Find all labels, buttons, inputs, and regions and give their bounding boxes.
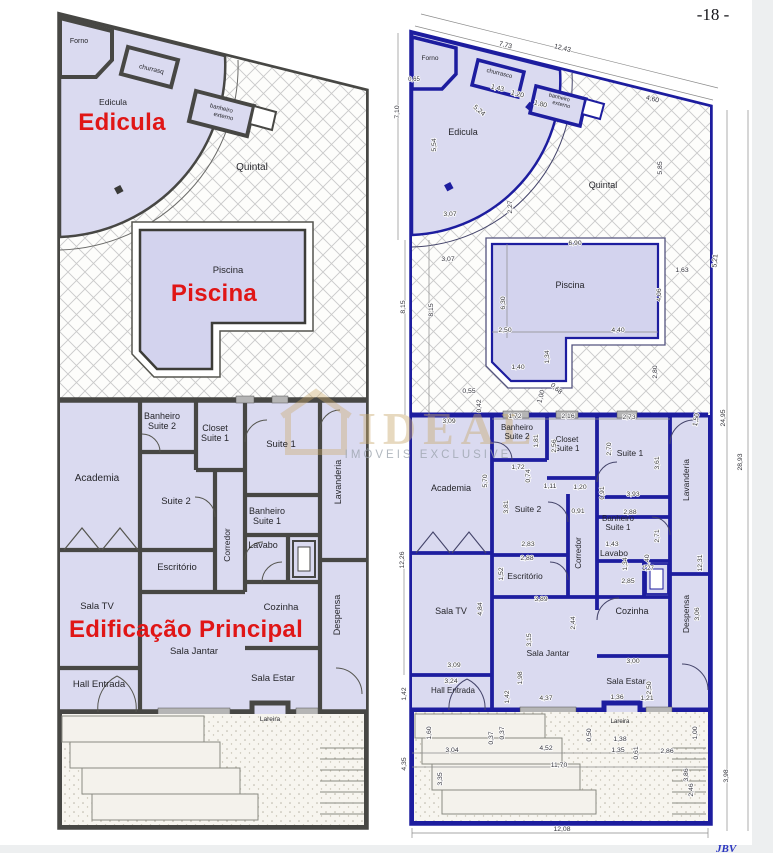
room-label: Suite 2: [505, 432, 530, 441]
dimension-label: 8,15: [428, 303, 435, 316]
dimension-label: 2,73: [622, 414, 635, 421]
dimension-label: 1,72: [508, 413, 521, 420]
dimension-label: 5,85: [657, 161, 664, 174]
room-label: Piscina: [213, 265, 244, 276]
dimension-label: 2,27: [507, 200, 514, 213]
dimension-label: 1,43: [605, 541, 618, 548]
dimension-label: 1,36: [610, 694, 623, 701]
dimension-label: 1,40: [511, 364, 524, 371]
dimension-label: 2,70: [606, 442, 613, 455]
dimension-label: 3,07: [443, 211, 456, 218]
right-shaft-inner: [650, 569, 663, 589]
room-label: Edicula: [448, 127, 478, 137]
room-label: Suite 1: [266, 439, 296, 450]
dimension-label: 1,27: [642, 566, 654, 572]
room-label: Hall Entrada: [431, 686, 476, 695]
dimension-label: 5,21: [711, 254, 719, 268]
dimension-label: 2,56: [551, 439, 558, 452]
dimension-label: 3,00: [626, 658, 639, 665]
dimension-label: 2,80: [652, 365, 659, 378]
room-label: Sala TV: [80, 601, 114, 612]
room-label: Closet: [556, 435, 579, 444]
dimension-label: 4,40: [611, 327, 624, 334]
room-label: Cozinha: [264, 602, 300, 613]
dimension-label: 0,42: [476, 399, 483, 412]
page-bottom-margin: [0, 845, 773, 853]
dimension-label: 7,10: [394, 105, 401, 118]
room-label: Escritório: [507, 571, 543, 581]
dimension-label: 5,54: [431, 138, 438, 151]
dimension-label: 1,34: [622, 557, 629, 570]
dimension-label: 1,52: [498, 567, 505, 580]
dimension-label: 2,88: [623, 509, 636, 516]
dimension-label: 7,73: [498, 41, 513, 51]
dimension-label: 12,26: [399, 551, 406, 568]
dimension-label: 1,38: [613, 736, 626, 743]
dimension-label: 1,81: [533, 434, 540, 447]
room-label: Forno: [422, 55, 439, 62]
dimension-label: 2,86: [660, 748, 673, 755]
page-right-margin: [752, 0, 773, 853]
dimension-label: 0,55: [462, 388, 475, 395]
dimension-label: 1,35: [611, 747, 624, 754]
room-label: Hall Entrada: [73, 679, 126, 690]
room-label: Sala Jantar: [527, 648, 570, 658]
dimension-label: 2,50: [646, 681, 653, 694]
dimension-label: 1,98: [517, 671, 524, 684]
left-window: [236, 396, 254, 403]
dimension-label: 11,70: [551, 762, 568, 769]
dimension-label: 0,37: [488, 731, 495, 744]
dimension-label: 2,85: [621, 578, 634, 585]
left-plan: [60, 15, 366, 827]
dimension-label: 1,34: [544, 350, 551, 363]
dimension-label: 5,70: [482, 474, 489, 487]
dimension-label: 3,61: [654, 456, 661, 469]
dimension-label: 1,63: [675, 267, 688, 274]
dimension-label: 0,61: [633, 746, 640, 759]
dimension-label: 2,83: [521, 541, 534, 548]
dimension-label: 0,65: [408, 77, 420, 83]
room-label: Suite 2: [515, 504, 542, 514]
dimension-label: 1,42: [401, 687, 408, 700]
dimension-label: 1,60: [426, 726, 433, 739]
dimension-label: 3,09: [447, 662, 460, 669]
dimension-label: 0,91: [599, 486, 606, 499]
room-label: Sala Estar: [251, 673, 295, 684]
dimension-label: 1,20: [573, 484, 586, 491]
room-label: Quintal: [236, 162, 268, 173]
red-title-label: Edicula: [78, 109, 166, 136]
dimension-label: 1,72: [511, 464, 524, 471]
dimension-label: 4,84: [477, 602, 484, 615]
dimension-label: 3,04: [445, 747, 458, 754]
room-label: Lavabo: [600, 548, 628, 558]
room-label: Edicula: [99, 97, 127, 107]
red-title-label: Piscina: [171, 280, 257, 307]
room-label: Suite 1: [201, 433, 229, 443]
room-label: Academia: [431, 483, 471, 493]
dimension-label: 3,35: [437, 772, 444, 785]
dimension-label: 12,08: [553, 826, 570, 833]
dimension-label: 4,35: [401, 757, 408, 770]
dimension-label: 3,15: [526, 633, 533, 646]
dimension-label: 4,06: [656, 288, 663, 301]
dimension-label: 0,74: [525, 469, 532, 482]
dimension-label: 28,93: [737, 453, 744, 470]
room-label: Corredor: [222, 528, 232, 562]
dimension-label: 1,42: [504, 690, 511, 703]
room-label: Suite 2: [161, 496, 191, 507]
dimension-label: 2,71: [654, 529, 661, 542]
room-label: Suite 2: [148, 421, 176, 431]
dimension-label: 6,90: [568, 240, 581, 247]
dimension-label: 1,21: [640, 695, 653, 702]
dimension-label: 0,37: [499, 726, 506, 739]
page-number: -18 -: [697, 5, 730, 24]
dimension-label: 3,09: [442, 418, 455, 425]
room-label: Despensa: [681, 595, 691, 634]
room-label: Piscina: [555, 280, 584, 290]
dimension-label: 3,07: [441, 256, 454, 263]
room-label: Banheiro: [249, 506, 285, 516]
dimension-label: 2,50: [498, 327, 511, 334]
dimension-label: 3,24: [444, 678, 457, 685]
dimension-label: 2,16: [561, 413, 574, 420]
room-label: Suite 1: [555, 444, 580, 453]
room-label: Sala TV: [435, 606, 467, 616]
room-label: Forno: [70, 38, 88, 45]
dimension-label: 4,37: [539, 695, 552, 702]
room-label: Sala Jantar: [170, 646, 218, 657]
room-label: Lareira: [260, 716, 281, 723]
room-label: Quintal: [589, 180, 618, 190]
dimension-label: 3,86: [683, 768, 690, 781]
room-label: Lareira: [611, 719, 630, 725]
room-label: Suite 1: [617, 448, 644, 458]
dimension-label: 3,06: [694, 607, 701, 620]
dimension-label: 3,81: [503, 500, 510, 513]
room-label: Lavabo: [248, 540, 278, 550]
room-label: Suite 1: [253, 516, 281, 526]
dimension-label: 3,93: [626, 491, 639, 498]
dimension-label: 3,98: [723, 769, 730, 782]
left-shaft-inner: [298, 547, 310, 571]
dimension-label: 2,46: [688, 783, 695, 796]
room-label: Lavanderia: [681, 459, 691, 501]
dimension-label: 6,30: [500, 296, 507, 309]
room-label: Escritório: [157, 562, 197, 573]
room-label: Lavanderia: [333, 460, 343, 505]
floorplan-drawing: IDEAL IMÓVEIS EXCLUSIVE -18 - JBV Fornoc…: [0, 0, 773, 853]
red-title-label: Edificação Principal: [69, 616, 303, 643]
dimension-label: 2,88: [520, 555, 533, 562]
dimension-label: 8,15: [400, 300, 407, 313]
dimension-label: 4,52: [539, 745, 552, 752]
dimension-label: 1,11: [544, 483, 557, 490]
dimension-label: 24,95: [720, 409, 727, 426]
room-label: Corredor: [574, 537, 583, 569]
room-label: Cozinha: [615, 606, 648, 616]
left-window: [272, 396, 288, 403]
footer-logo: JBV: [715, 843, 738, 853]
room-label: Academia: [75, 473, 120, 484]
dimension-label: 2,44: [570, 616, 577, 629]
dimension-label: 3,89: [534, 596, 547, 603]
room-label: Despensa: [332, 595, 342, 636]
room-label: Banheiro: [144, 411, 180, 421]
room-label: Sala Estar: [606, 676, 645, 686]
room-label: Closet: [202, 423, 228, 433]
room-label: Suite 1: [606, 523, 631, 532]
dimension-label: 1,00: [692, 726, 699, 739]
floorplan-page: IDEAL IMÓVEIS EXCLUSIVE -18 - JBV Fornoc…: [0, 0, 773, 853]
dimension-label: 12,43: [553, 43, 571, 54]
dimension-label: 0,50: [586, 728, 593, 741]
dimension-label: 0,91: [571, 508, 584, 515]
room-label: Banheiro: [501, 423, 534, 432]
dimension-label: 12,31: [697, 554, 704, 571]
watermark-subtitle: IMÓVEIS EXCLUSIVE: [345, 448, 512, 461]
